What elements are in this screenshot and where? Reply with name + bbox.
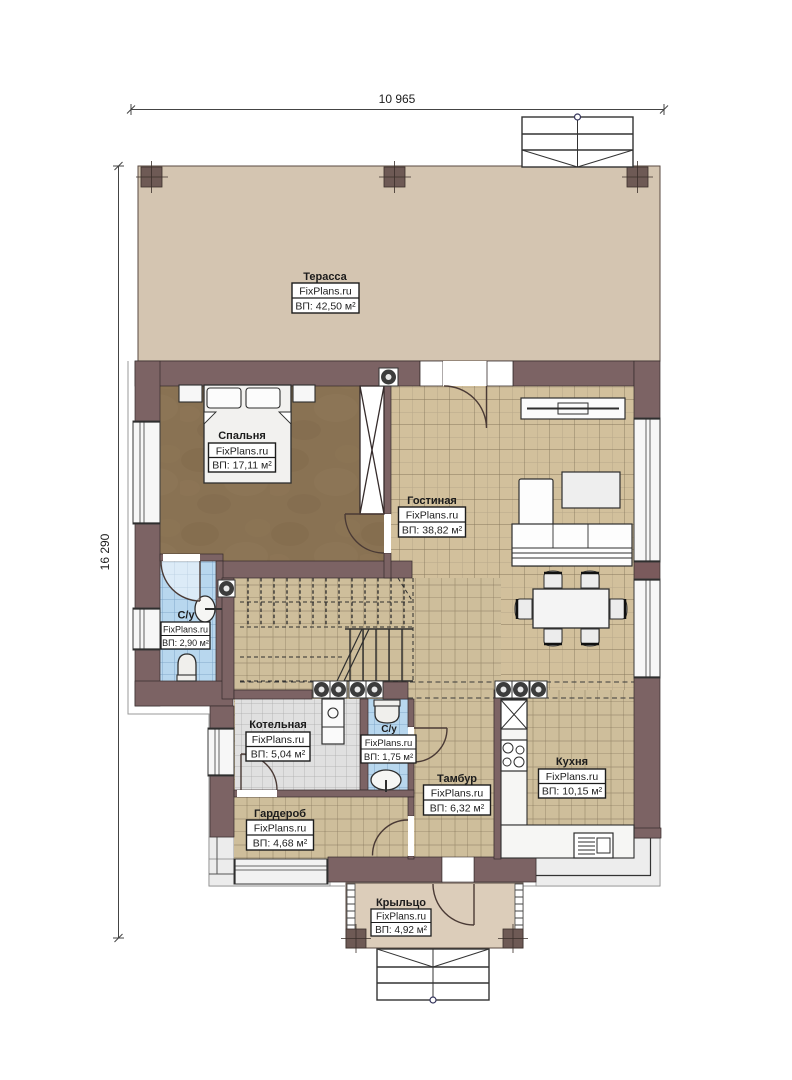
svg-text:Гостиная: Гостиная <box>407 495 457 507</box>
svg-text:ВП: 17,11 м²: ВП: 17,11 м² <box>212 460 272 472</box>
svg-text:ВП: 38,82 м²: ВП: 38,82 м² <box>402 525 463 537</box>
svg-text:FixPlans.ru: FixPlans.ru <box>254 823 307 835</box>
svg-text:ВП: 6,32 м²: ВП: 6,32 м² <box>430 803 485 815</box>
svg-text:FixPlans.ru: FixPlans.ru <box>299 286 352 298</box>
svg-text:FixPlans.ru: FixPlans.ru <box>406 510 459 522</box>
svg-text:ВП: 42,50 м²: ВП: 42,50 м² <box>295 301 356 313</box>
svg-text:Кухня: Кухня <box>556 756 588 768</box>
svg-text:FixPlans.ru: FixPlans.ru <box>546 771 599 783</box>
svg-text:FixPlans.ru: FixPlans.ru <box>365 738 413 749</box>
svg-text:FixPlans.ru: FixPlans.ru <box>163 625 208 635</box>
svg-text:Гардероб: Гардероб <box>254 808 306 820</box>
svg-text:Спальня: Спальня <box>218 430 266 442</box>
svg-text:ВП: 5,04 м²: ВП: 5,04 м² <box>251 749 306 761</box>
svg-text:10 965: 10 965 <box>379 92 416 106</box>
svg-text:Крыльцо: Крыльцо <box>376 897 426 909</box>
svg-text:16 290: 16 290 <box>98 533 112 570</box>
svg-text:FixPlans.ru: FixPlans.ru <box>431 788 484 800</box>
svg-text:FixPlans.ru: FixPlans.ru <box>376 912 426 923</box>
svg-text:ВП: 1,75 м²: ВП: 1,75 м² <box>364 752 413 763</box>
svg-text:FixPlans.ru: FixPlans.ru <box>252 734 305 746</box>
svg-text:FixPlans.ru: FixPlans.ru <box>216 446 269 458</box>
svg-text:ВП: 4,68 м²: ВП: 4,68 м² <box>253 838 308 850</box>
svg-text:ВП: 4,92 м²: ВП: 4,92 м² <box>375 925 428 936</box>
svg-text:С/у: С/у <box>381 724 397 735</box>
svg-text:ВП: 10,15 м²: ВП: 10,15 м² <box>542 786 603 798</box>
svg-text:С/у: С/у <box>177 610 195 622</box>
svg-text:Терасса: Терасса <box>303 271 347 283</box>
svg-text:ВП: 2,90 м²: ВП: 2,90 м² <box>162 638 209 648</box>
svg-text:Котельная: Котельная <box>249 719 307 731</box>
svg-text:Тамбур: Тамбур <box>437 773 477 785</box>
